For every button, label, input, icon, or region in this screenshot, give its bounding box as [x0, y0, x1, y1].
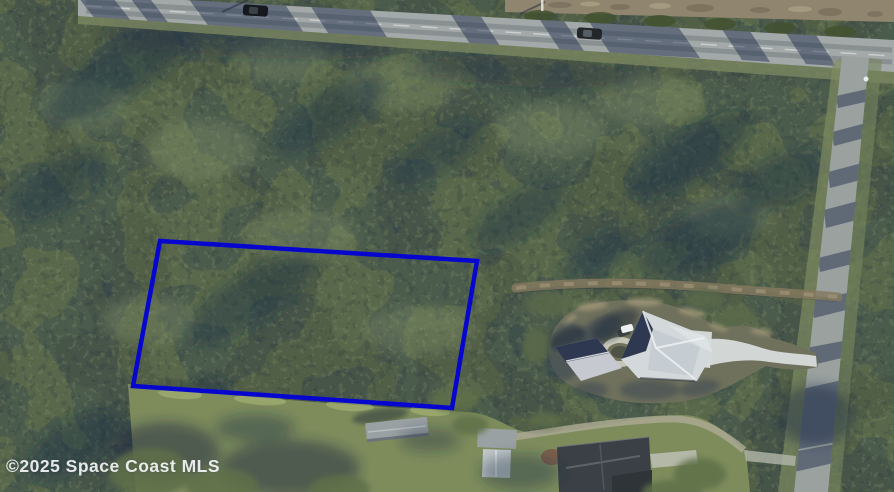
aerial-photo-canvas	[0, 0, 894, 492]
vehicle-on-highway-east	[577, 27, 603, 40]
utility-pole	[541, 0, 544, 11]
dark-roof-house	[557, 437, 652, 492]
mls-watermark: ©2025 Space Coast MLS	[6, 456, 220, 477]
vehicle-on-highway-west	[243, 4, 269, 17]
aerial-photo: ©2025 Space Coast MLS	[0, 0, 894, 492]
object-at-intersection	[864, 77, 869, 82]
